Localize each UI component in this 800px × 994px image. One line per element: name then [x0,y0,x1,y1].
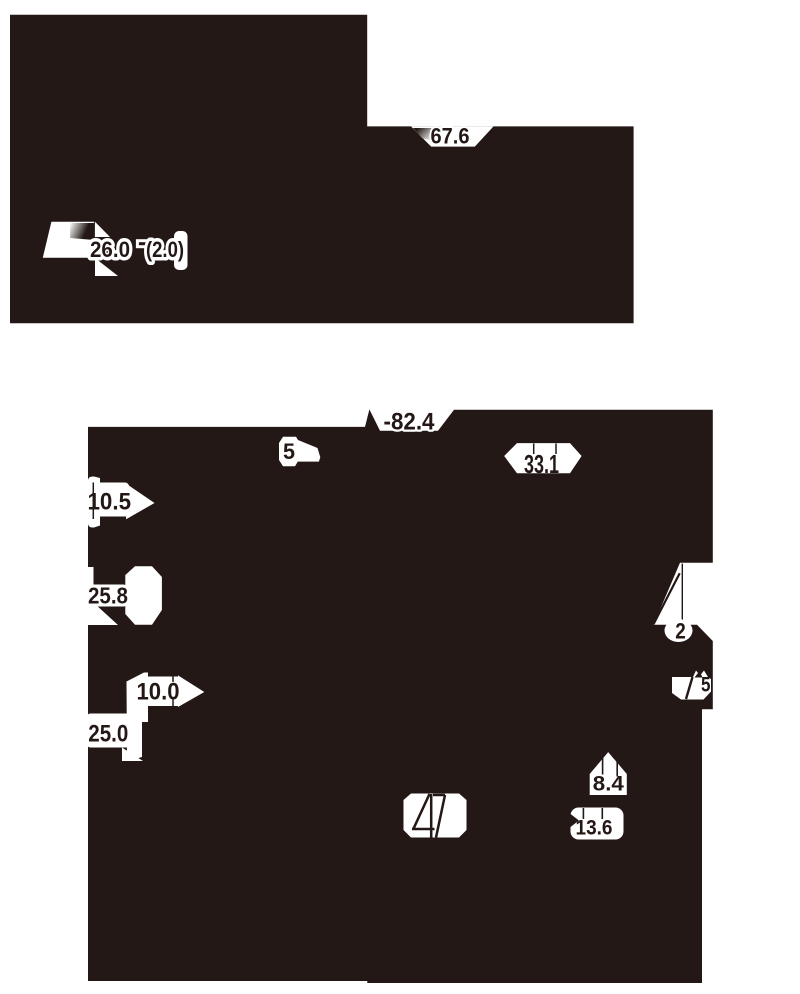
svg-text:2: 2 [675,619,686,644]
svg-text:25.0: 25.0 [88,720,128,747]
svg-text:5: 5 [701,674,711,697]
svg-text:25.8: 25.8 [88,583,128,609]
svg-text:67.6: 67.6 [431,123,470,148]
svg-text:(2.0): (2.0) [146,237,184,262]
svg-text:33.1: 33.1 [524,451,559,479]
svg-text:13.6: 13.6 [576,815,613,839]
svg-text:-82.4: -82.4 [384,408,436,435]
svg-text:5: 5 [283,439,295,464]
svg-text:26.0: 26.0 [90,237,130,262]
svg-text:8.4: 8.4 [593,772,624,796]
